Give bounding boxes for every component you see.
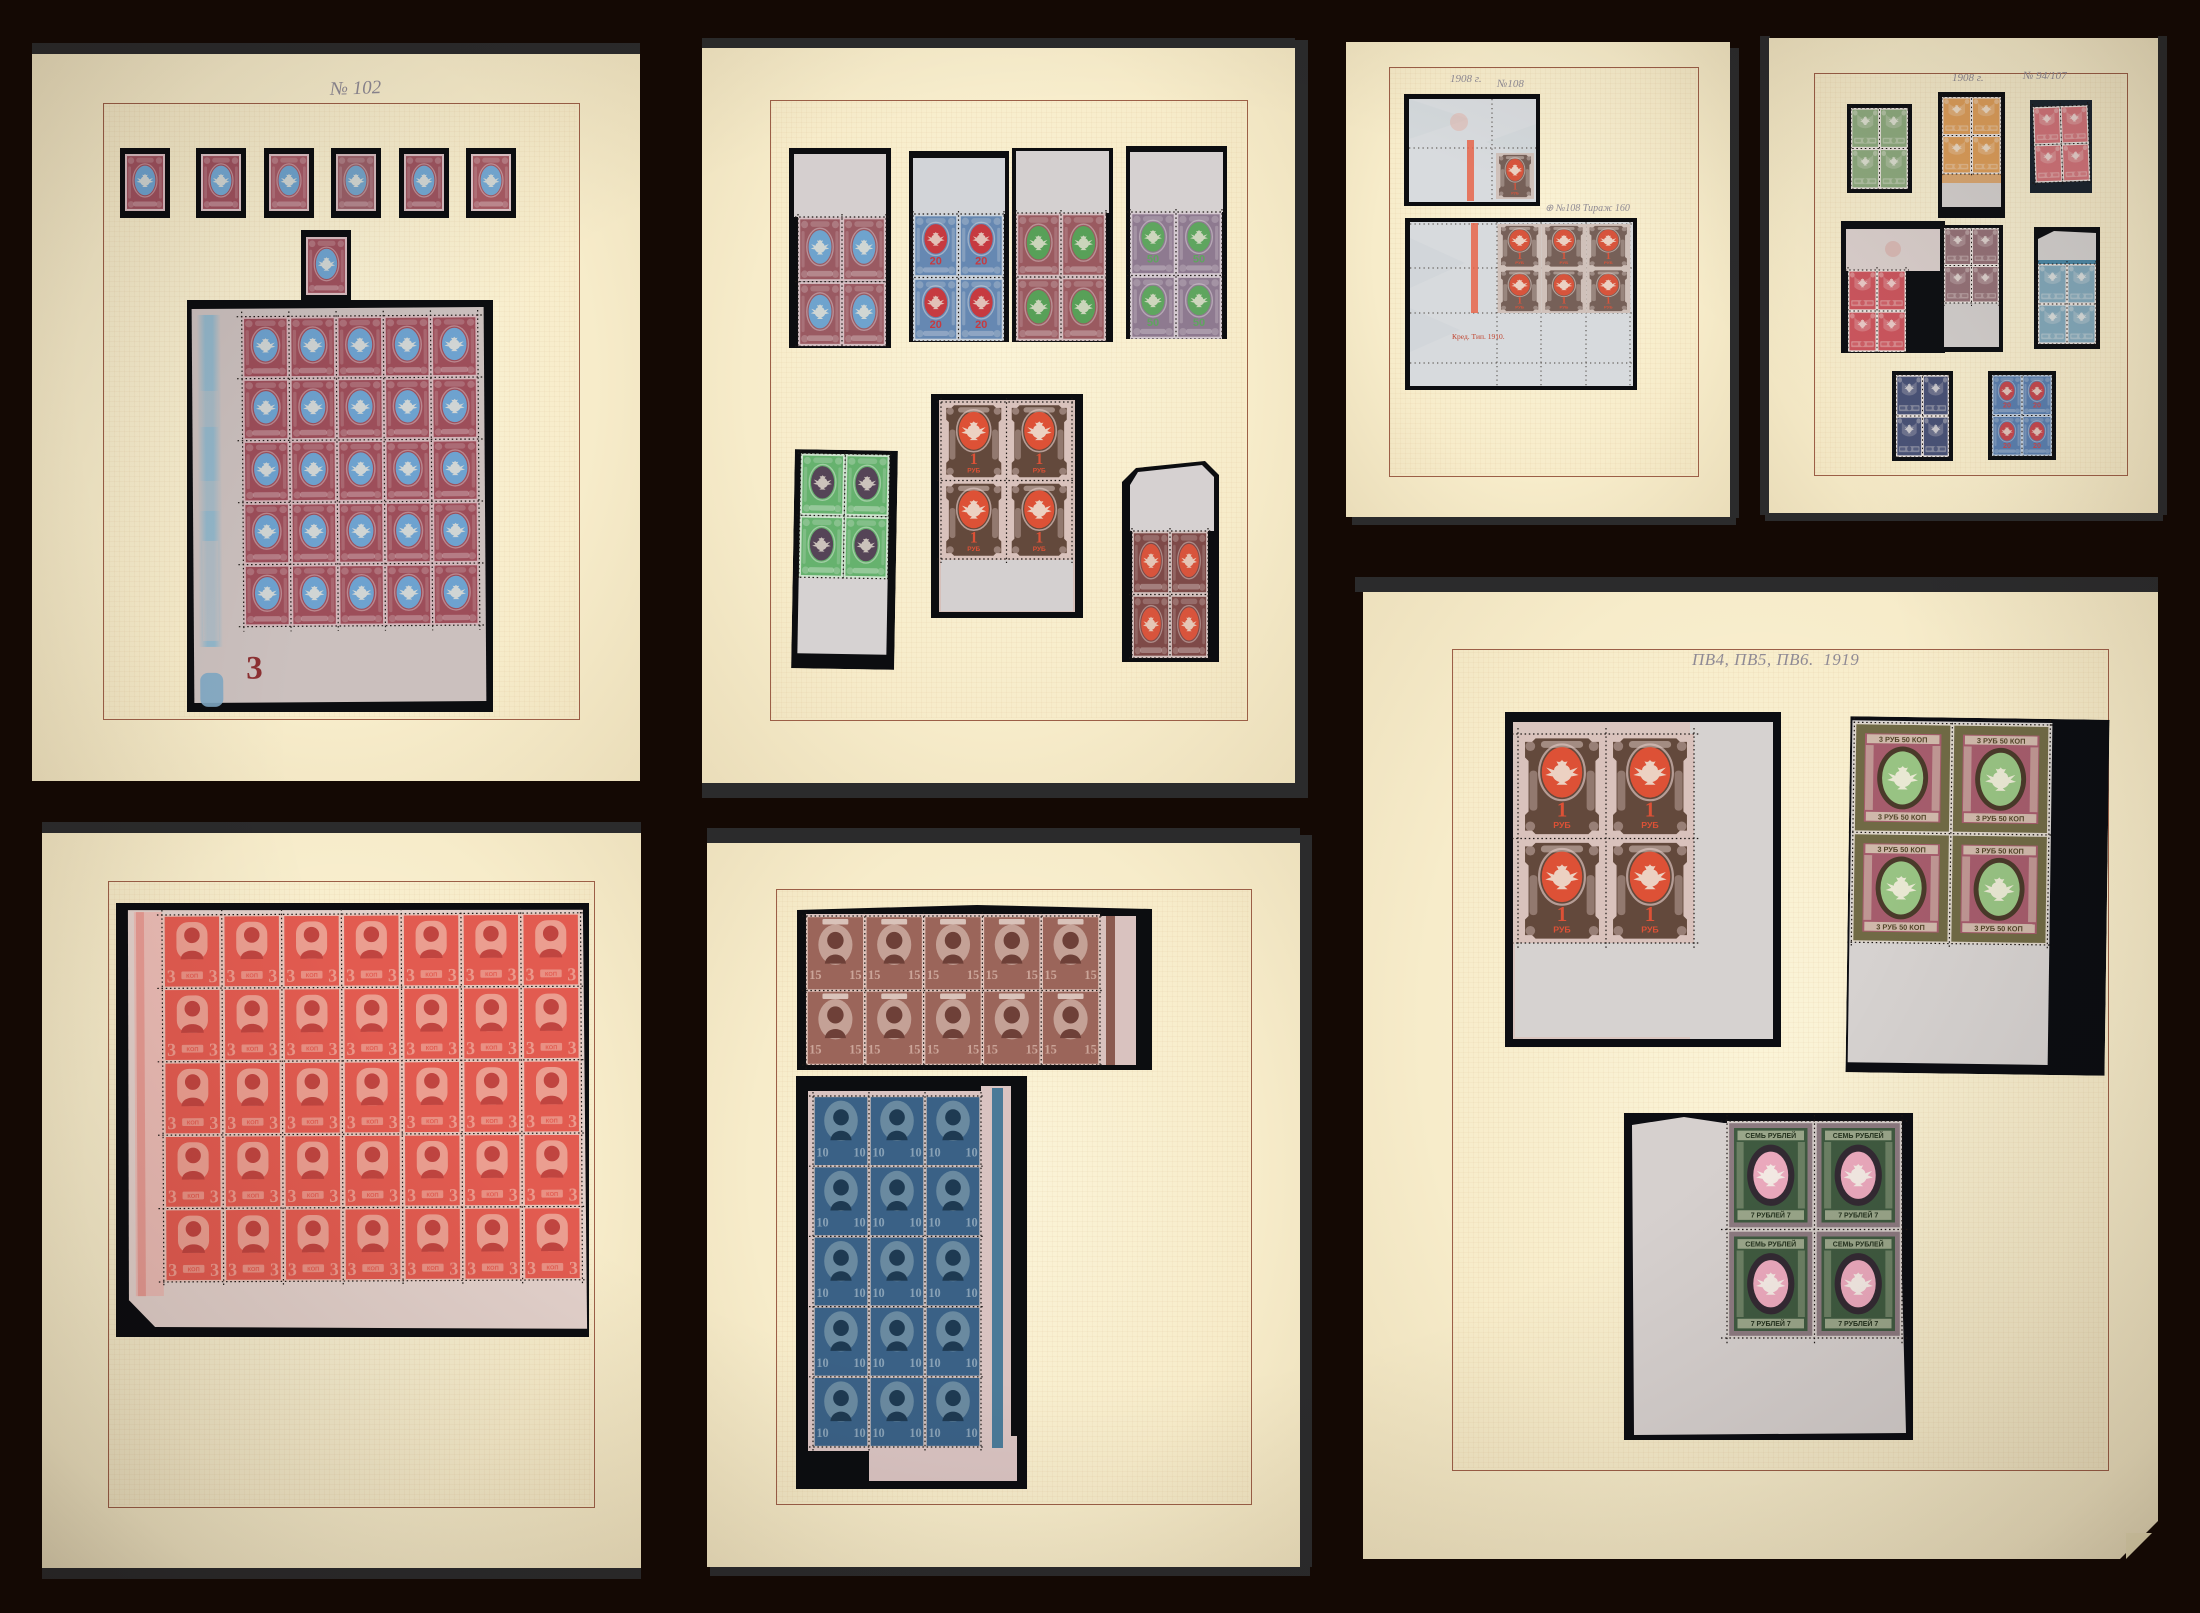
svg-text:3: 3 xyxy=(246,651,263,687)
svg-text:Кред. Тип. 1910.: Кред. Тип. 1910. xyxy=(1452,332,1505,341)
